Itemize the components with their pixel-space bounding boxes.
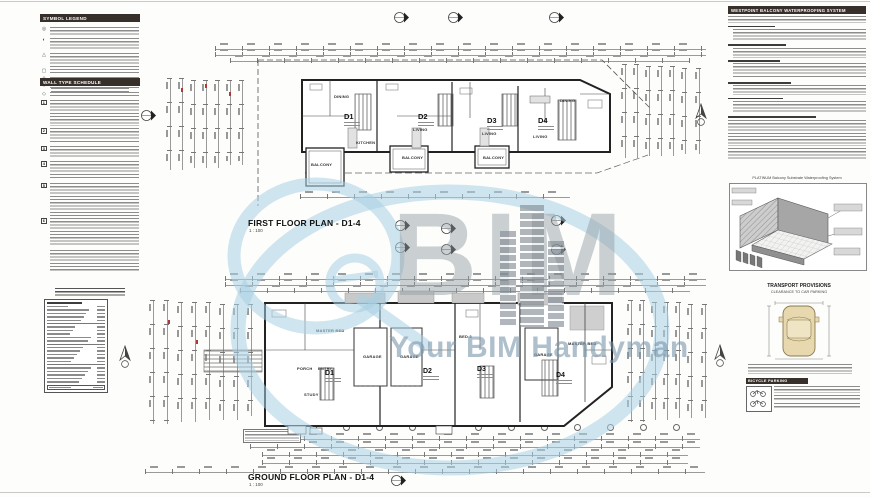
waterproofing-diagram bbox=[729, 183, 867, 271]
room-label-master-bed: MASTER BED bbox=[316, 328, 344, 333]
drawing-sheet: SYMBOL LEGEND ◎ ◐ △ ▢ ✛ ○ ◇ WALL TYPE SC… bbox=[0, 0, 870, 497]
section-marker-icon bbox=[390, 473, 407, 488]
bicycle-diagram bbox=[746, 386, 772, 412]
room-label-bed3: BED 3 bbox=[459, 334, 472, 339]
room-label-garage: GARAGE bbox=[363, 354, 382, 359]
room-label-balcony: BALCONY bbox=[311, 162, 332, 167]
unit-label-d3-first-floor: D3 bbox=[487, 116, 503, 130]
text-line bbox=[50, 53, 139, 67]
sheet-bottom-edge bbox=[0, 492, 870, 493]
subhead-line bbox=[728, 60, 780, 62]
ground-floor-plan-scale: 1 : 100 bbox=[249, 482, 263, 487]
bicycle-parking-header: BICYCLE PARKING bbox=[746, 378, 808, 384]
dimension-string bbox=[262, 448, 688, 456]
subhead-line bbox=[728, 44, 786, 46]
section-marker-icon bbox=[550, 242, 567, 257]
legend-item: △ bbox=[41, 53, 139, 67]
wall-type-item: 2 bbox=[41, 128, 139, 143]
subhead-line bbox=[728, 116, 816, 118]
section-marker-icon bbox=[440, 242, 457, 257]
text-line bbox=[55, 288, 125, 296]
wall-type-item: 5 bbox=[41, 183, 139, 216]
unit-label-d4-ground-floor: D4 bbox=[556, 372, 572, 384]
room-label-garage: GARAGE bbox=[534, 352, 553, 357]
area-note bbox=[55, 288, 125, 296]
section-marker-icon bbox=[393, 10, 410, 25]
downpipe-icon: △ bbox=[41, 53, 47, 58]
room-label-living: LIVING bbox=[482, 131, 497, 136]
dimension-string bbox=[262, 456, 688, 464]
section-marker-icon bbox=[548, 10, 565, 25]
text-line bbox=[728, 16, 866, 23]
text-line bbox=[50, 128, 140, 143]
text-line bbox=[50, 69, 139, 73]
room-label-garage: GARAGE bbox=[400, 354, 419, 359]
unit-label-d1-ground-floor: D1 bbox=[325, 370, 341, 382]
room-label-balcony: BALCONY bbox=[483, 155, 504, 160]
room-label-living: LIVING bbox=[413, 127, 428, 132]
subhead-line bbox=[728, 82, 791, 84]
bicycle-notes bbox=[774, 386, 860, 409]
room-label-kitchen: KITCHEN bbox=[356, 140, 375, 145]
room-label-dining: DINING bbox=[334, 94, 349, 99]
text-line bbox=[50, 27, 139, 36]
text-line bbox=[733, 63, 866, 79]
unit-label-d2-first-floor: D2 bbox=[418, 112, 434, 126]
wall-type-schedule-panel: WALL TYPE SCHEDULE 1 2 3 4 5 6 bbox=[40, 78, 140, 272]
wall-type-number: 5 bbox=[41, 183, 47, 189]
wall-type-schedule-header: WALL TYPE SCHEDULE bbox=[40, 78, 140, 86]
subhead-line bbox=[728, 98, 783, 100]
room-label-balcony: BALCONY bbox=[402, 155, 423, 160]
subhead-line bbox=[728, 26, 775, 28]
legend-item: ◐ bbox=[41, 38, 139, 50]
wall-type-number: 1 bbox=[41, 100, 47, 106]
transport-subheader: CLEARANCE TO CAR PARKING bbox=[744, 290, 854, 294]
wall-type-item: 6 bbox=[41, 218, 139, 247]
wall-type-number: 4 bbox=[41, 161, 47, 167]
table-title-line bbox=[47, 302, 82, 304]
text-line bbox=[733, 85, 866, 95]
table-group bbox=[47, 347, 105, 363]
text-line bbox=[733, 101, 866, 114]
legend-item: ◎ bbox=[41, 27, 139, 36]
transport-note bbox=[748, 364, 852, 374]
sheet-top-edge bbox=[0, 1, 870, 2]
text-line bbox=[50, 100, 140, 126]
balcony-isometric-drawing bbox=[730, 184, 866, 270]
first-floor-plan-title: FIRST FLOOR PLAN - D1-4 bbox=[248, 218, 361, 228]
dimension-string bbox=[250, 440, 700, 448]
wall-type-number: 6 bbox=[41, 218, 47, 224]
wall-type-number: 3 bbox=[41, 146, 47, 152]
text-line bbox=[728, 120, 866, 146]
table-group bbox=[47, 367, 105, 383]
waterproofing-panel: WESTPOINT BALCONY WATERPROOFING SYSTEM bbox=[728, 6, 866, 160]
dimension-string bbox=[145, 465, 705, 473]
first-floor-plan-scale: 1 : 100 bbox=[249, 228, 263, 233]
text-line bbox=[50, 161, 140, 180]
text-line bbox=[774, 395, 860, 401]
wall-type-item: 3 bbox=[41, 146, 139, 159]
section-marker-icon bbox=[394, 240, 411, 255]
room-label-dining: DINING bbox=[560, 98, 575, 103]
wall-type-item: 4 bbox=[41, 161, 139, 180]
ground-floor-plan-drawing bbox=[140, 290, 720, 440]
text-line bbox=[50, 146, 140, 159]
room-label-study: STUDY bbox=[304, 392, 319, 397]
text-line bbox=[733, 48, 866, 58]
text-line bbox=[50, 183, 140, 216]
room-label-entry: ENTRY bbox=[318, 366, 332, 371]
bicycle-icon bbox=[747, 387, 771, 411]
section-marker-icon bbox=[440, 221, 457, 236]
text-line bbox=[50, 218, 140, 247]
vent-icon: ▢ bbox=[41, 69, 47, 74]
room-label-master-bed: MASTER BED bbox=[568, 341, 596, 346]
north-arrow-icon bbox=[117, 345, 133, 369]
text-line bbox=[50, 250, 139, 272]
text-line bbox=[774, 403, 860, 409]
section-marker-icon bbox=[447, 10, 464, 25]
unit-label-d3-ground-floor: D3 bbox=[477, 366, 493, 378]
unit-label-d1-first-floor: D1 bbox=[344, 112, 360, 126]
ground-floor-plan-title: GROUND FLOOR PLAN - D1-4 bbox=[248, 472, 374, 482]
waterproofing-header: WESTPOINT BALCONY WATERPROOFING SYSTEM bbox=[728, 6, 866, 14]
table-group bbox=[47, 306, 105, 322]
car-clearance-diagram bbox=[763, 298, 835, 362]
unit-label-d4-first-floor: D4 bbox=[538, 116, 554, 130]
table-group bbox=[47, 326, 105, 342]
text-line bbox=[733, 29, 866, 42]
first-floor-plan-drawing bbox=[150, 38, 720, 223]
text-line bbox=[50, 38, 139, 50]
transport-header: TRANSPORT PROVISIONS bbox=[744, 283, 854, 289]
wall-type-number: 2 bbox=[41, 128, 47, 134]
legend-item: ▢ bbox=[41, 69, 139, 74]
table-total-row bbox=[47, 385, 105, 391]
dwelling-area-table bbox=[44, 299, 108, 393]
waterproofing-caption: PLATINUM Balcony Substrate Waterproofing… bbox=[730, 176, 864, 180]
room-label-living: LIVING bbox=[533, 134, 548, 139]
symbol-legend-header: SYMBOL LEGEND bbox=[40, 14, 140, 22]
unit-label-d2-ground-floor: D2 bbox=[423, 368, 439, 380]
text-line bbox=[728, 148, 866, 160]
room-label-porch: PORCH bbox=[297, 366, 312, 371]
smoke-detector-icon: ◎ bbox=[41, 27, 47, 32]
wall-type-item: 1 bbox=[41, 100, 139, 126]
exhaust-fan-icon: ◐ bbox=[41, 38, 47, 43]
text-line bbox=[774, 386, 860, 393]
